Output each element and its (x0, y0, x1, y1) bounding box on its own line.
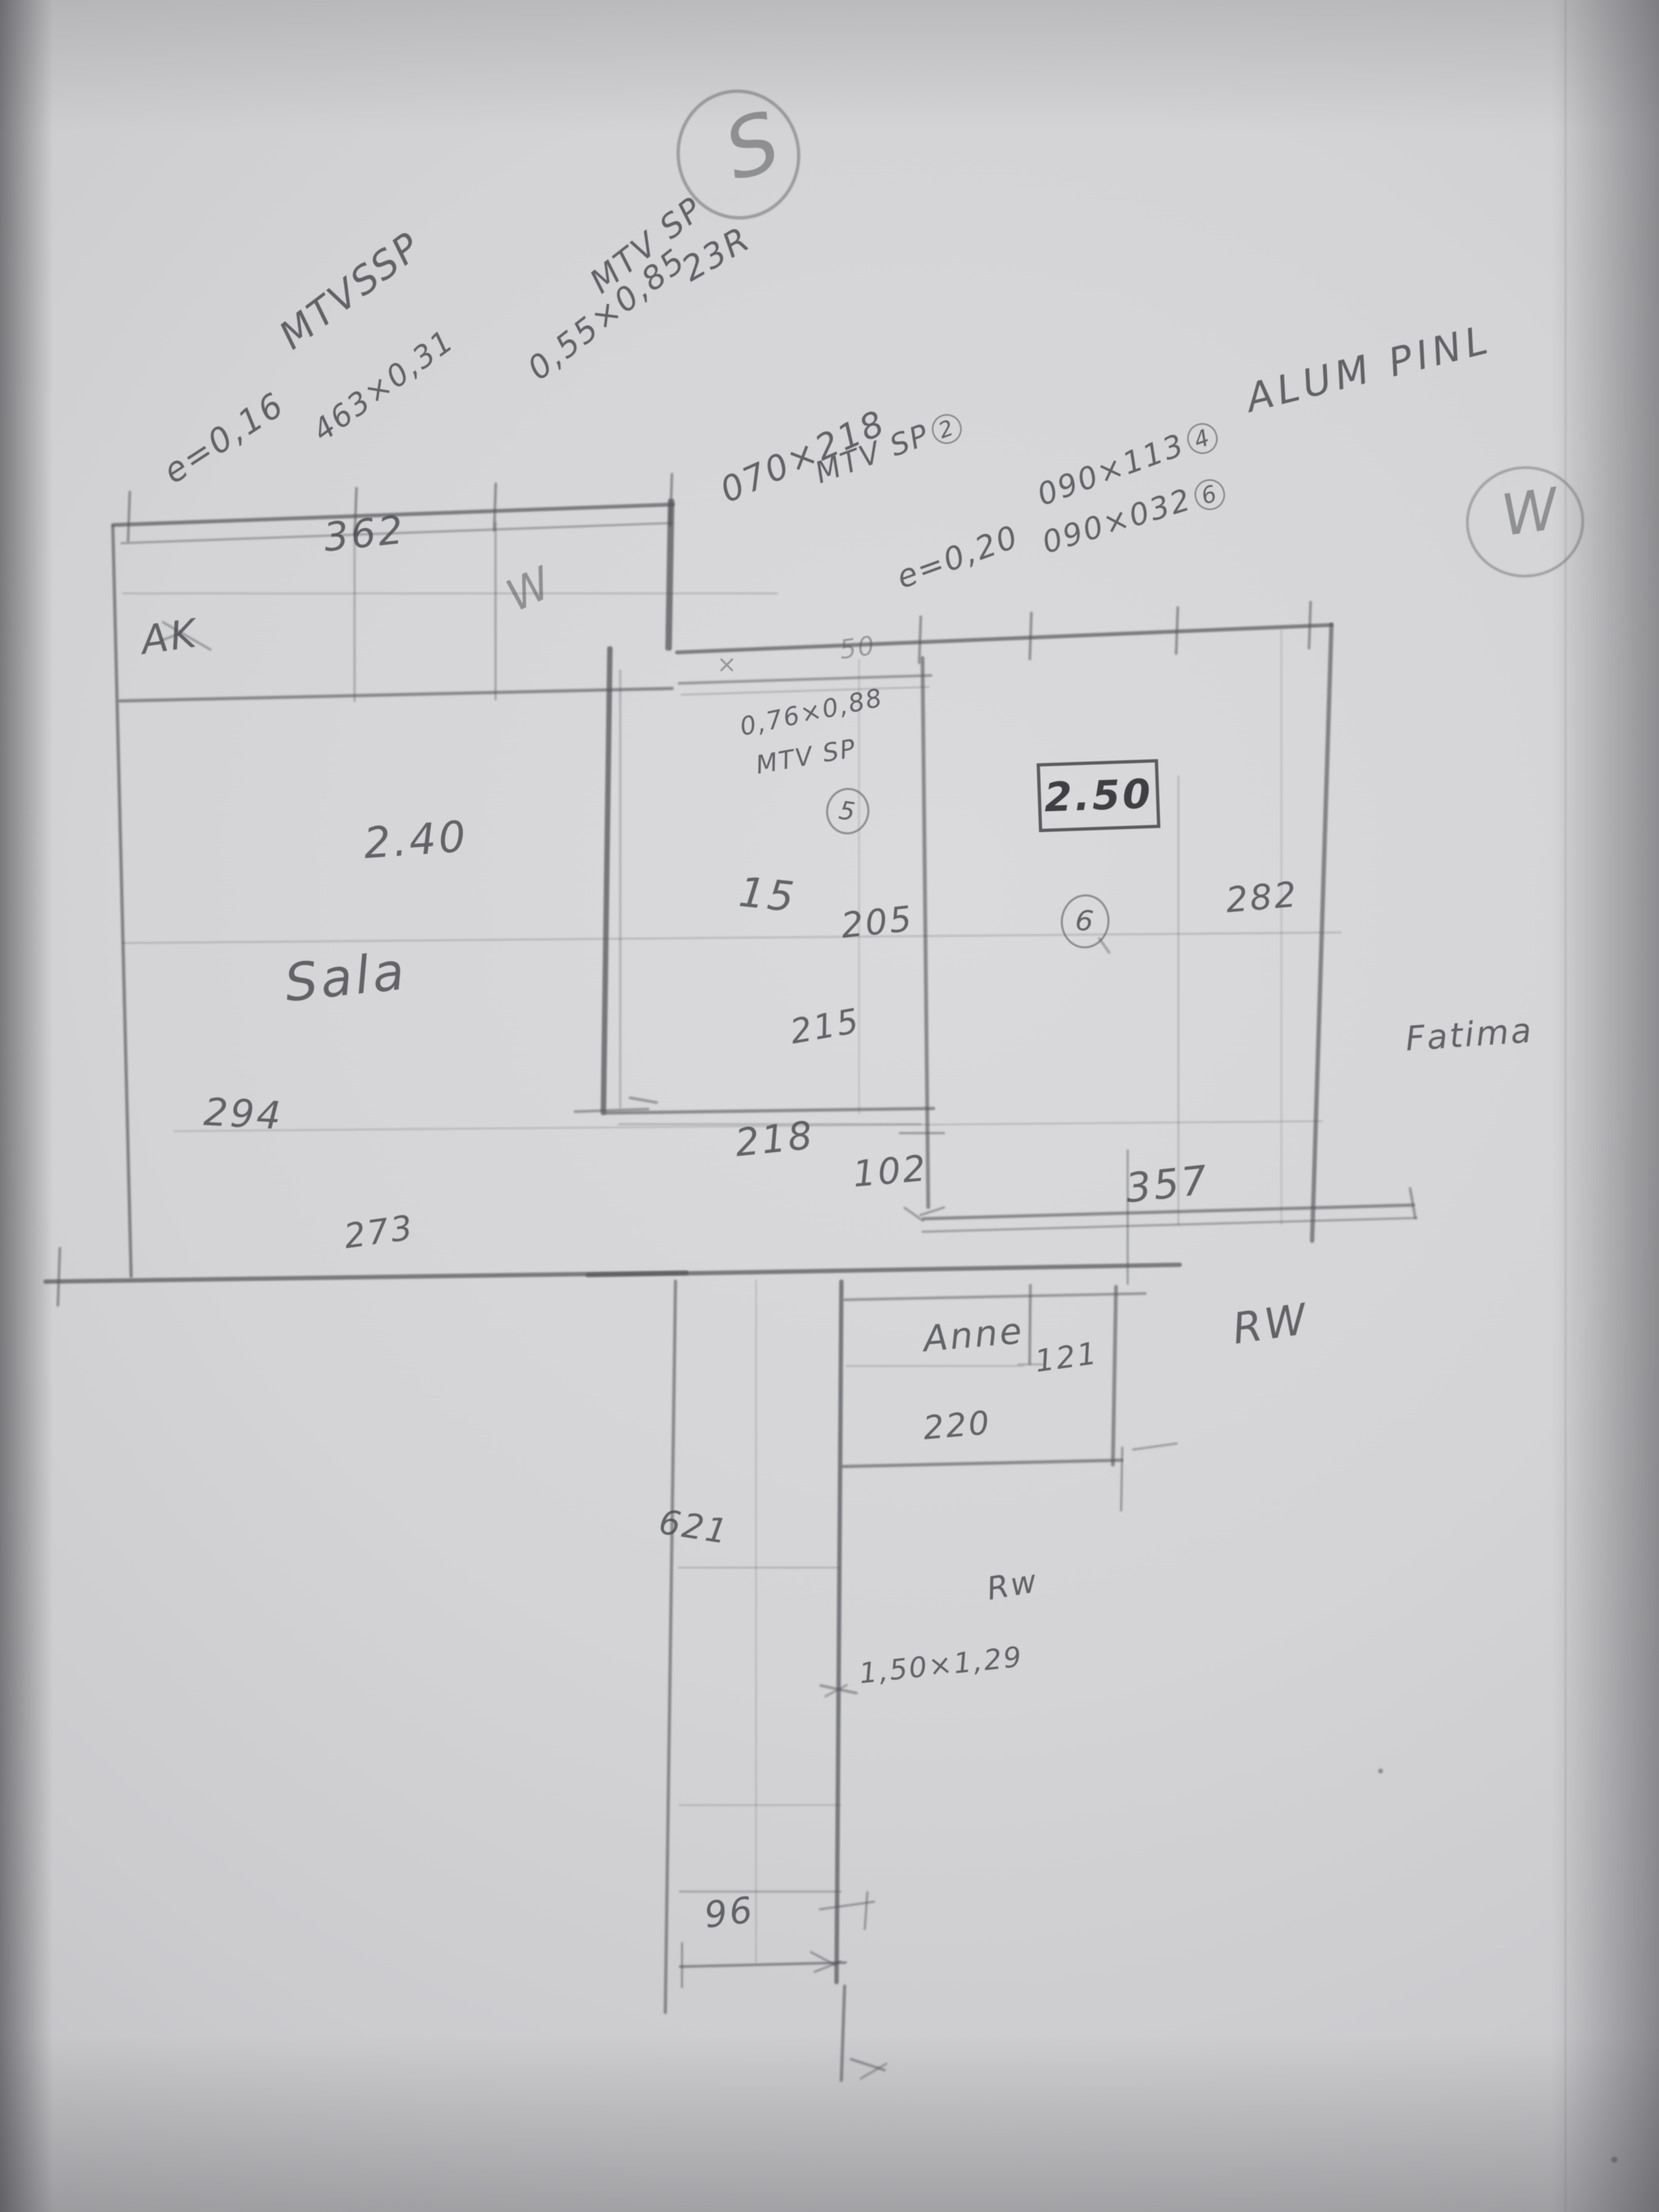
wall-corridor-right (834, 1279, 844, 1984)
wall-ledge-inner (680, 686, 930, 696)
label-bedroom: Anne (922, 1310, 1025, 1360)
construction-line (755, 1279, 757, 1963)
construction-line (846, 1365, 1025, 1367)
wall-middle-bottom (605, 1107, 935, 1115)
photo-of-sketch: S W MTVSSP e=0,16 463×0,31 MTV SP 23R 0,… (0, 0, 1659, 2212)
dim-middle-c: 218 (733, 1113, 816, 1166)
wall-bedroom-top-inner (843, 1292, 1147, 1301)
wall-balcony-bottom (118, 687, 674, 703)
dim-tick (899, 1132, 945, 1134)
dim-tick (56, 1247, 61, 1307)
construction-line (679, 1804, 841, 1806)
wall-bedroom-right (1111, 1285, 1118, 1467)
construction-line (122, 931, 1342, 944)
compass-west-letter: W (1497, 475, 1566, 549)
dim-sala-bottom: 273 (342, 1207, 416, 1256)
construction-line (1281, 629, 1282, 1225)
tag-tail (1098, 937, 1111, 954)
paper-crease (1565, 0, 1566, 2212)
wall-right-room-bottom-inner (922, 1217, 1418, 1233)
grid-line (494, 522, 497, 700)
annotation-winA-tag: 4 (1183, 419, 1222, 458)
annotation-win5-title: MTV SP (754, 733, 859, 780)
dim-bedroom-bottom: 220 (922, 1404, 993, 1448)
dim-tick (1132, 1442, 1178, 1451)
dim-tick (1120, 1446, 1123, 1512)
wall-ledge (678, 674, 933, 685)
circled-room-tag: 6 (1058, 892, 1113, 951)
construction-line (858, 659, 860, 1114)
dim-corridor-length: 621 (657, 1502, 732, 1552)
wall-bottom-main-right (586, 1263, 1182, 1277)
label-balcony-mark: W (499, 557, 561, 622)
wall-top-main (675, 623, 1333, 654)
annotation-e20: e=0,20 (892, 518, 1024, 596)
arrow-head (628, 1096, 658, 1104)
dim-middle-top: 15 (737, 867, 799, 922)
wall-mark-cross: × (717, 651, 738, 678)
annotation-corridor-window: 1,50×1,29 (858, 1641, 1025, 1690)
dim-bedroom-right: 121 (1033, 1336, 1101, 1380)
wall-mark-fifty: 50 (838, 631, 878, 666)
paper-sheet: S W MTVSSP e=0,16 463×0,31 MTV SP 23R 0,… (0, 0, 1659, 2212)
dim-tick (681, 1942, 683, 1988)
pencil-speck (1611, 2157, 1617, 2163)
dim-middle-d: 102 (851, 1147, 929, 1195)
dim-tick (127, 491, 131, 542)
label-balcony-code: AK (138, 610, 201, 663)
wall-bedroom-bottom (841, 1458, 1123, 1468)
annotation-win5-tag: 5 (823, 785, 872, 837)
wall-sala-right (601, 646, 613, 1115)
construction-line (679, 1891, 841, 1893)
label-rw-right: RW (1230, 1295, 1312, 1354)
annotation-win1-e: e=0,16 (156, 384, 292, 492)
annotation-material: ALUM PINL (1242, 316, 1496, 421)
dim-middle-b: 215 (787, 1001, 863, 1052)
annotation-winB-tag: 6 (1191, 475, 1229, 513)
wall-bedroom-inner (1028, 1284, 1032, 1365)
label-rw-corridor: Rw (984, 1562, 1041, 1607)
label-owner-name: Fatima (1404, 1011, 1534, 1059)
label-sala: Sala (282, 941, 410, 1013)
wall-sala-right-ghost (619, 670, 621, 1109)
dim-corridor-width: 96 (702, 1889, 757, 1937)
annotation-win1-title: MTVSSP (271, 223, 430, 358)
pencil-speck (1378, 1769, 1383, 1773)
wall-corridor-right-ext (840, 1984, 846, 2082)
dim-sala-left: 294 (203, 1090, 284, 1139)
wall-left-outer (111, 525, 133, 1278)
wall-middle-right (921, 656, 930, 1209)
wall-corridor-left (664, 1279, 677, 2014)
dim-line-96 (679, 1961, 847, 1968)
dim-middle-a: 205 (839, 899, 916, 947)
dim-balcony-width: 362 (321, 506, 407, 560)
construction-line (122, 593, 778, 594)
arrow-head (919, 1206, 946, 1217)
boxed-height-value: 2.50 (1037, 759, 1160, 832)
dim-right-room-bottom: 357 (1123, 1157, 1212, 1212)
dim-tick (864, 1891, 869, 1930)
arrow-head (849, 2057, 886, 2072)
construction-line (1178, 775, 1179, 1225)
construction-line (678, 1567, 840, 1568)
annotation-door-tag: 2 (928, 410, 966, 448)
dim-right-room: 282 (1224, 874, 1300, 921)
dim-sala-height: 2.40 (362, 813, 470, 869)
annotation-win1-size: 463×0,31 (306, 323, 461, 448)
